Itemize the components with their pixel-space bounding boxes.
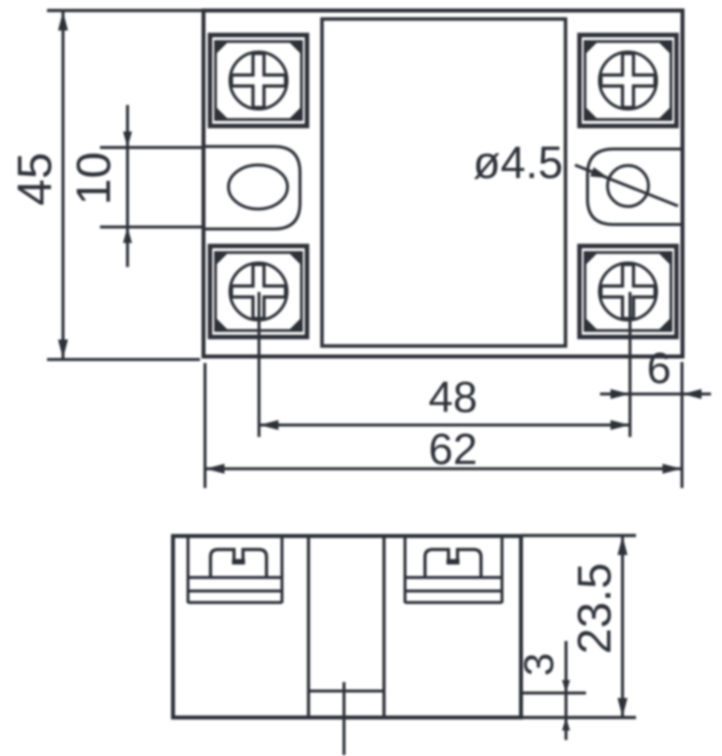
svg-text:48: 48 xyxy=(429,373,478,422)
svg-text:6: 6 xyxy=(647,344,671,393)
svg-text:23.5: 23.5 xyxy=(568,563,621,654)
svg-text:3: 3 xyxy=(515,653,562,676)
svg-text:45: 45 xyxy=(9,152,62,205)
svg-text:ø4.5: ø4.5 xyxy=(473,137,563,188)
svg-text:10: 10 xyxy=(68,152,121,205)
svg-text:62: 62 xyxy=(429,425,478,474)
